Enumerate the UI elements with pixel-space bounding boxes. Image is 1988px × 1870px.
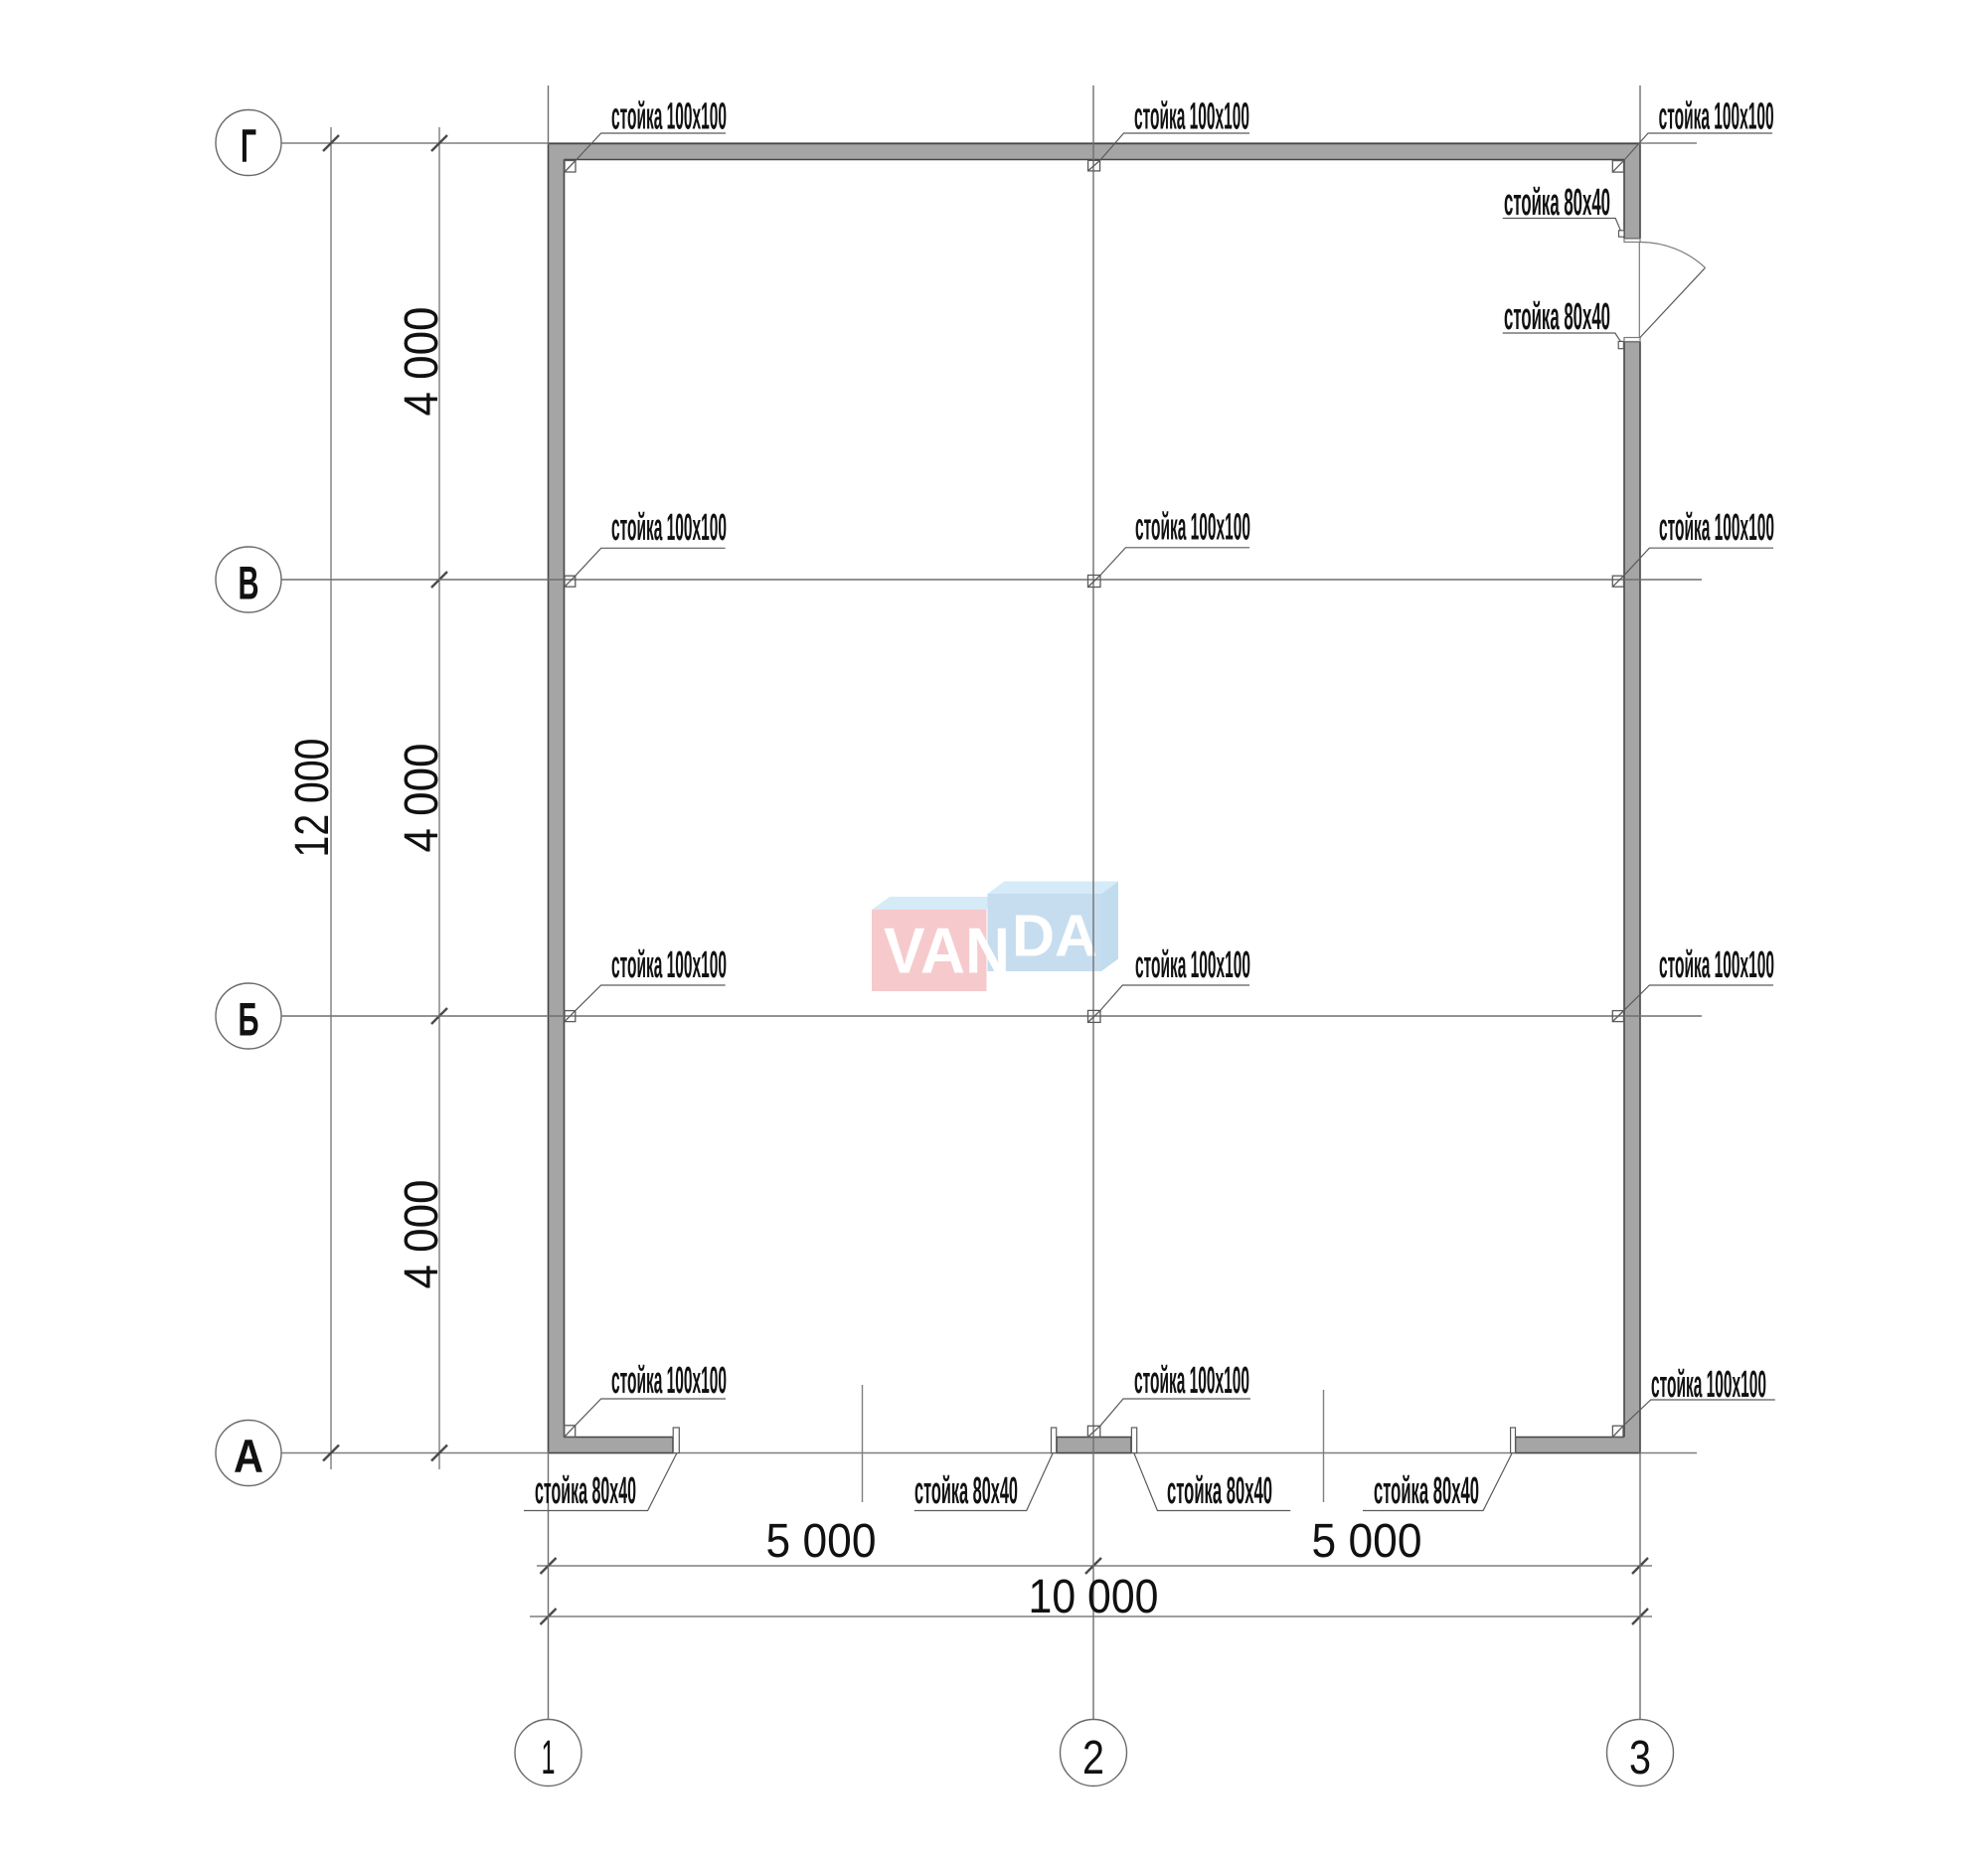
svg-text:стойка 100х100: стойка 100х100 — [1135, 944, 1250, 986]
svg-text:стойка 100х100: стойка 100х100 — [1134, 96, 1249, 138]
svg-text:стойка 80х40: стойка 80х40 — [1504, 182, 1610, 224]
svg-text:4 000: 4 000 — [396, 1180, 448, 1289]
svg-text:5 000: 5 000 — [766, 1515, 877, 1568]
svg-text:стойка 100х100: стойка 100х100 — [1659, 944, 1774, 986]
svg-text:стойка 80х40: стойка 80х40 — [914, 1470, 1018, 1512]
svg-text:В: В — [239, 557, 259, 609]
svg-text:стойка 80х40: стойка 80х40 — [1167, 1470, 1272, 1512]
svg-text:3: 3 — [1629, 1732, 1651, 1785]
svg-text:стойка 100х100: стойка 100х100 — [1134, 1360, 1249, 1402]
svg-text:4 000: 4 000 — [396, 307, 448, 417]
svg-text:стойка 100х100: стойка 100х100 — [611, 96, 727, 138]
svg-text:4 000: 4 000 — [396, 744, 448, 853]
svg-text:стойка 80х40: стойка 80х40 — [1504, 296, 1610, 338]
svg-text:стойка 100х100: стойка 100х100 — [611, 1360, 727, 1402]
svg-text:стойка 100х100: стойка 100х100 — [1135, 507, 1250, 549]
svg-text:А: А — [234, 1430, 263, 1482]
svg-text:12 000: 12 000 — [286, 739, 339, 858]
svg-text:10 000: 10 000 — [1029, 1571, 1159, 1623]
svg-text:стойка 100х100: стойка 100х100 — [1659, 507, 1774, 549]
svg-text:1: 1 — [542, 1732, 556, 1785]
svg-text:стойка 100х100: стойка 100х100 — [611, 944, 727, 986]
svg-text:Б: Б — [239, 993, 259, 1046]
svg-text:стойка 80х40: стойка 80х40 — [1374, 1470, 1479, 1512]
svg-text:VAN: VAN — [884, 915, 1010, 987]
svg-text:2: 2 — [1082, 1732, 1104, 1785]
svg-text:5 000: 5 000 — [1312, 1515, 1422, 1568]
svg-text:стойка 100х100: стойка 100х100 — [611, 507, 727, 549]
svg-text:DA: DA — [1012, 904, 1097, 969]
svg-text:стойка 80х40: стойка 80х40 — [535, 1470, 636, 1512]
svg-text:стойка 100х100: стойка 100х100 — [1651, 1364, 1766, 1406]
svg-text:стойка 100х100: стойка 100х100 — [1659, 96, 1774, 138]
svg-text:Г: Г — [241, 119, 256, 172]
